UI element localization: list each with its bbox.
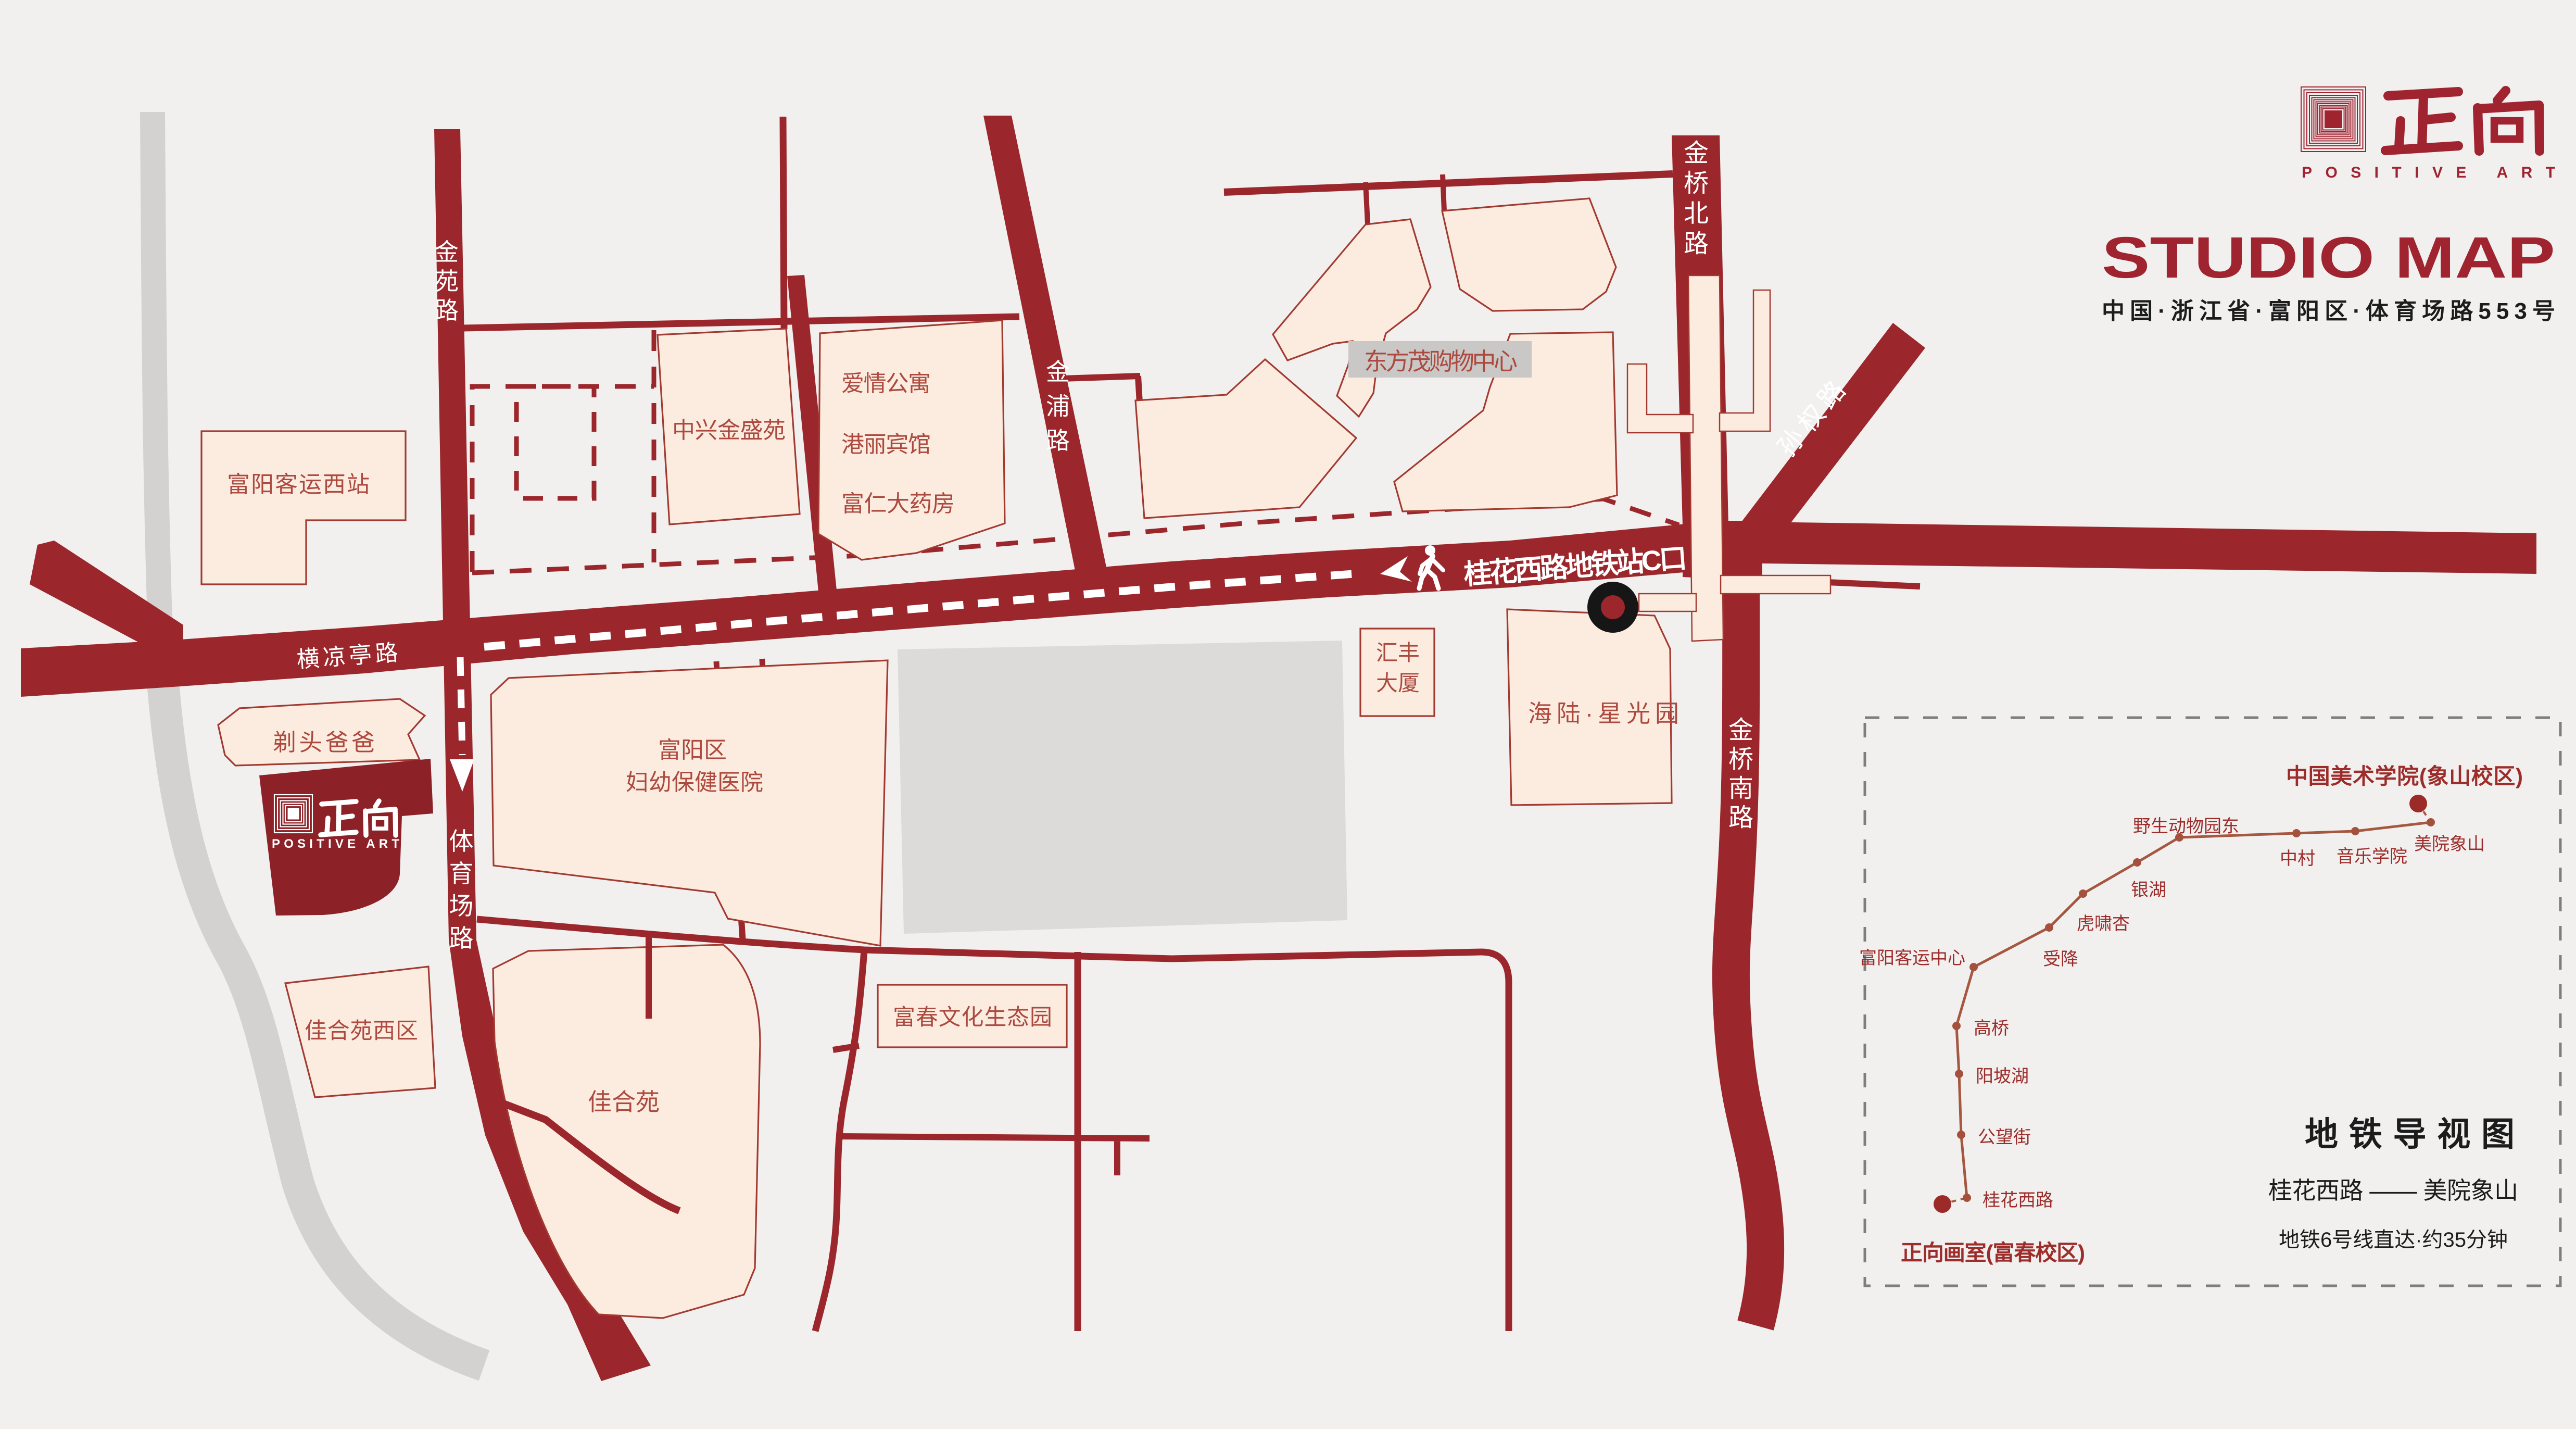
svg-text:富阳客运中心: 富阳客运中心: [1859, 948, 1965, 968]
svg-text:港丽宾馆: 港丽宾馆: [841, 432, 931, 457]
svg-text:桂花西路: 桂花西路: [1982, 1190, 2053, 1210]
svg-text:妇幼保健医院: 妇幼保健医院: [626, 770, 763, 795]
svg-text:路: 路: [1684, 230, 1709, 258]
svg-text:野生动物园东: 野生动物园东: [2133, 817, 2239, 836]
svg-text:桥: 桥: [1684, 170, 1709, 197]
svg-text:富春文化生态园: 富春文化生态园: [893, 1005, 1052, 1030]
svg-text:海陆·星光园: 海陆·星光园: [1528, 700, 1679, 727]
svg-text:音乐学院: 音乐学院: [2337, 847, 2407, 867]
svg-text:场: 场: [449, 892, 474, 920]
svg-text:大厦: 大厦: [1376, 671, 1420, 695]
svg-text:富阳区: 富阳区: [658, 737, 727, 763]
svg-text:金: 金: [1684, 140, 1709, 167]
svg-text:浦: 浦: [1046, 393, 1070, 420]
svg-text:中兴金盛苑: 中兴金盛苑: [672, 418, 786, 443]
svg-text:公望街: 公望街: [1978, 1127, 2031, 1147]
svg-text:桥: 桥: [1728, 746, 1753, 773]
svg-text:佳合苑西区: 佳合苑西区: [305, 1019, 418, 1044]
svg-text:金: 金: [1728, 717, 1753, 744]
svg-text:地铁导视图: 地铁导视图: [2305, 1115, 2515, 1153]
svg-text:路: 路: [1728, 804, 1753, 832]
svg-text:东方茂购物中心: 东方茂购物中心: [1364, 348, 1518, 375]
svg-text:虎啸杏: 虎啸杏: [2077, 914, 2130, 934]
svg-text:苑: 苑: [435, 268, 459, 295]
svg-text:汇丰: 汇丰: [1376, 641, 1420, 665]
svg-text:中村: 中村: [2280, 849, 2315, 869]
svg-text:路: 路: [449, 924, 474, 952]
svg-text:南: 南: [1728, 775, 1753, 803]
svg-text:路: 路: [1046, 427, 1070, 454]
svg-text:中国美术学院(象山校区): 中国美术学院(象山校区): [2286, 764, 2523, 788]
svg-text:地铁6号线直达·约35分钟: 地铁6号线直达·约35分钟: [2279, 1229, 2508, 1251]
svg-text:POSITIVE ART: POSITIVE ART: [272, 837, 399, 851]
svg-text:受降: 受降: [2043, 949, 2078, 969]
svg-text:金: 金: [1046, 358, 1070, 385]
svg-text:STUDIO MAP: STUDIO MAP: [2102, 225, 2555, 290]
svg-text:桂花西路 —— 美院象山: 桂花西路 —— 美院象山: [2268, 1177, 2518, 1204]
svg-text:北: 北: [1684, 200, 1709, 228]
svg-text:佳合苑: 佳合苑: [588, 1088, 660, 1115]
svg-text:高桥: 高桥: [1974, 1019, 2009, 1038]
svg-text:正向画室(富春校区): 正向画室(富春校区): [1901, 1240, 2085, 1265]
svg-text:育: 育: [449, 860, 474, 887]
svg-text:银湖: 银湖: [2131, 880, 2166, 900]
svg-text:阳坡湖: 阳坡湖: [1976, 1067, 2029, 1086]
svg-text:路: 路: [435, 297, 459, 324]
svg-text:金: 金: [435, 239, 459, 266]
svg-text:爱情公寓: 爱情公寓: [841, 371, 931, 396]
svg-text:富仁大药房: 富仁大药房: [841, 491, 955, 517]
svg-text:美院象山: 美院象山: [2414, 834, 2485, 854]
svg-text:体: 体: [449, 828, 474, 855]
